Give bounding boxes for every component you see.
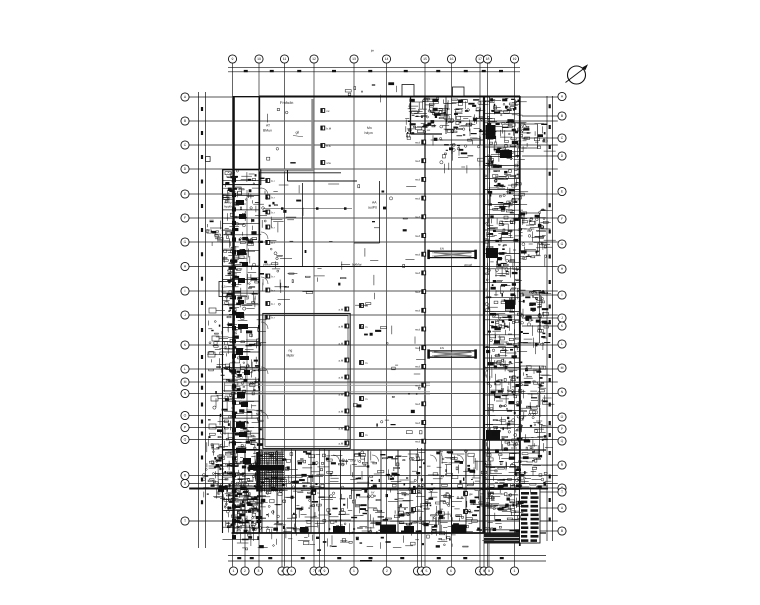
svg-text:bptMar: bptMar [352, 262, 362, 266]
svg-text:18: 18 [486, 57, 490, 61]
svg-text:rw.d: rw.d [415, 421, 421, 425]
svg-text:b.r: b.r [271, 274, 274, 278]
svg-text:3: 3 [258, 569, 260, 573]
svg-text:9: 9 [488, 569, 490, 573]
svg-text:O: O [184, 414, 187, 418]
svg-text:rw.d: rw.d [415, 383, 421, 387]
svg-text:T: T [561, 490, 563, 494]
svg-text:rw.d: rw.d [415, 234, 421, 238]
svg-text:a.M: a.M [339, 358, 344, 362]
svg-text:EN: EN [440, 346, 444, 350]
svg-text:a.M: a.M [339, 307, 344, 311]
svg-text:M: M [184, 380, 187, 384]
svg-text:b.r: b.r [271, 195, 274, 199]
svg-text:G: G [561, 242, 564, 246]
svg-text:a.M: a.M [339, 426, 344, 430]
svg-text:b.r: b.r [271, 288, 274, 292]
svg-text:14: 14 [385, 57, 389, 61]
svg-text:b.r: b.r [271, 210, 274, 214]
svg-text:J: J [561, 316, 563, 320]
svg-text:L: L [184, 367, 186, 371]
svg-text:16: 16 [450, 57, 454, 61]
svg-text:11: 11 [283, 57, 287, 61]
svg-text:jm: jm [370, 49, 375, 53]
svg-text:I: I [185, 289, 186, 293]
svg-text:17: 17 [478, 57, 482, 61]
svg-text:rw.d: rw.d [415, 440, 421, 444]
svg-text:rw.d: rw.d [415, 253, 421, 257]
svg-text:hm: hm [417, 508, 422, 512]
svg-text:b.r: b.r [271, 225, 274, 229]
svg-text:rw.d: rw.d [415, 215, 421, 219]
svg-text:a.M: a.M [339, 409, 344, 413]
svg-text:rw.d: rw.d [415, 309, 421, 313]
svg-text:LnM T: LnM T [350, 459, 359, 463]
svg-text:1: 1 [353, 569, 355, 573]
svg-text:autPtt: autPtt [368, 206, 377, 210]
svg-text:1: 1 [514, 569, 516, 573]
svg-text:1: 1 [233, 569, 235, 573]
svg-text:hY: hY [371, 491, 375, 495]
svg-text:b.M: b.M [326, 126, 331, 130]
svg-text:G: G [184, 240, 187, 244]
svg-text:9: 9 [232, 57, 234, 61]
svg-text:rw.d: rw.d [415, 159, 421, 163]
svg-text:F: F [561, 217, 563, 221]
svg-text:yprwrl: yprwrl [464, 263, 473, 267]
svg-text:Fmhctn: Fmhctn [280, 100, 293, 105]
svg-text:b.r: b.r [271, 179, 274, 183]
svg-text:rw.d: rw.d [415, 327, 421, 331]
svg-text:AA: AA [372, 201, 377, 205]
svg-text:I: I [562, 293, 563, 297]
svg-text:Q: Q [561, 439, 564, 443]
svg-text:gil: gil [296, 131, 300, 135]
svg-text:2: 2 [244, 569, 246, 573]
svg-text:AT: AT [266, 124, 270, 128]
svg-text:ng: ng [289, 349, 293, 353]
svg-text:L: L [561, 342, 563, 346]
svg-text:a.M: a.M [339, 392, 344, 396]
svg-text:b.r: b.r [271, 302, 274, 306]
svg-text:13: 13 [352, 57, 356, 61]
svg-text:Q: Q [184, 438, 187, 442]
svg-text:hyqkhnl: hyqkhnl [224, 205, 235, 209]
svg-text:a.M: a.M [339, 341, 344, 345]
svg-text:rw.d: rw.d [415, 346, 421, 350]
svg-text:rw.d: rw.d [415, 271, 421, 275]
svg-text:rw.d: rw.d [415, 402, 421, 406]
svg-text:F: F [184, 216, 186, 220]
svg-text:a.M: a.M [339, 375, 344, 379]
svg-text:b.r: b.r [271, 315, 274, 319]
svg-text:a.M: a.M [339, 441, 344, 445]
svg-text:J: J [184, 313, 186, 317]
svg-text:Mpbr: Mpbr [287, 354, 296, 358]
svg-text:Mn: Mn [367, 126, 372, 130]
svg-text:EN: EN [440, 246, 444, 250]
svg-text:rw.d: rw.d [415, 140, 421, 144]
svg-text:O: O [561, 415, 564, 419]
svg-text:5: 5 [426, 569, 428, 573]
svg-text:a.M: a.M [339, 324, 344, 328]
svg-text:9: 9 [324, 569, 326, 573]
svg-text:rw.d: rw.d [415, 178, 421, 182]
svg-text:T: T [184, 519, 186, 523]
svg-text:7: 7 [313, 569, 315, 573]
svg-text:BMun: BMun [263, 129, 272, 133]
svg-text:rw.d: rw.d [415, 196, 421, 200]
svg-text:2: 2 [386, 569, 388, 573]
svg-text:19: 19 [513, 57, 517, 61]
svg-text:7.Zn: 7.Zn [221, 285, 227, 289]
svg-text:rw.d: rw.d [415, 290, 421, 294]
svg-text:b.A: b.A [326, 144, 330, 148]
svg-text:15: 15 [423, 57, 427, 61]
svg-text:6: 6 [291, 569, 293, 573]
svg-text:rw.d: rw.d [415, 365, 421, 369]
svg-text:12: 12 [312, 57, 316, 61]
svg-text:10: 10 [257, 57, 261, 61]
svg-text:6: 6 [450, 569, 452, 573]
svg-text:b.r: b.r [271, 241, 274, 245]
svg-text:hdym: hdym [365, 131, 373, 135]
svg-text:M: M [561, 366, 564, 370]
